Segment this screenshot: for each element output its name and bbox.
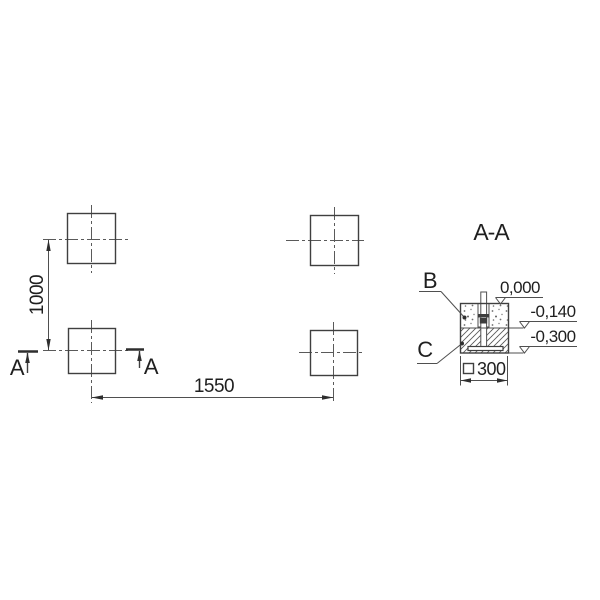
section-cut-left: A <box>10 352 38 381</box>
elevation-arrow <box>520 322 530 329</box>
view-direction-arrow <box>137 351 142 362</box>
arrowhead-left <box>92 395 104 399</box>
section-title: A-A <box>473 219 510 245</box>
base-dimension-text: 300 <box>477 359 506 379</box>
elevation-mark-top: 0,000 <box>496 278 544 304</box>
plan-view: 1000 1550 A A <box>10 205 365 403</box>
cut-letter-right: A <box>144 354 159 379</box>
dimension-horizontal-1550: 1550 <box>92 376 334 400</box>
elevation-text-bottom: -0,300 <box>530 327 575 346</box>
arrowhead-right <box>322 395 334 399</box>
label-b-leader: B <box>419 268 467 320</box>
elevation-text-top: 0,000 <box>500 278 540 297</box>
bolt-nut-lower <box>480 318 487 324</box>
view-direction-arrow <box>25 353 30 364</box>
drawing-canvas: 1000 1550 A A A-A <box>0 0 600 600</box>
dimension-vertical-1000: 1000 <box>27 240 51 351</box>
elevation-arrow <box>520 347 530 354</box>
arrowhead-down <box>46 339 50 351</box>
anchor-plate <box>468 347 503 351</box>
label-c-leader: C <box>417 337 464 364</box>
elevation-text-middle: -0,140 <box>530 302 575 321</box>
section-cut-right: A <box>126 350 159 380</box>
square-symbol-icon <box>464 364 474 374</box>
leader-line <box>437 344 462 364</box>
elevation-mark-bottom: -0,300 <box>520 327 578 353</box>
dimension-text-1000: 1000 <box>27 275 48 315</box>
arrowhead-up <box>46 240 50 252</box>
cut-letter-left: A <box>10 355 25 380</box>
label-c: C <box>417 337 433 362</box>
dimension-text-1550: 1550 <box>194 376 234 397</box>
leader-dot <box>463 316 467 320</box>
label-b: B <box>423 268 437 293</box>
section-view: A-A B C 0 <box>417 219 577 386</box>
leader-dot <box>460 342 464 346</box>
dimension-base-300: 300 <box>461 356 508 386</box>
arrowhead-left <box>461 378 472 382</box>
bolt-nut-upper <box>478 314 489 318</box>
engineering-drawing: 1000 1550 A A A-A <box>0 0 600 600</box>
elevation-mark-middle: -0,140 <box>520 302 578 328</box>
